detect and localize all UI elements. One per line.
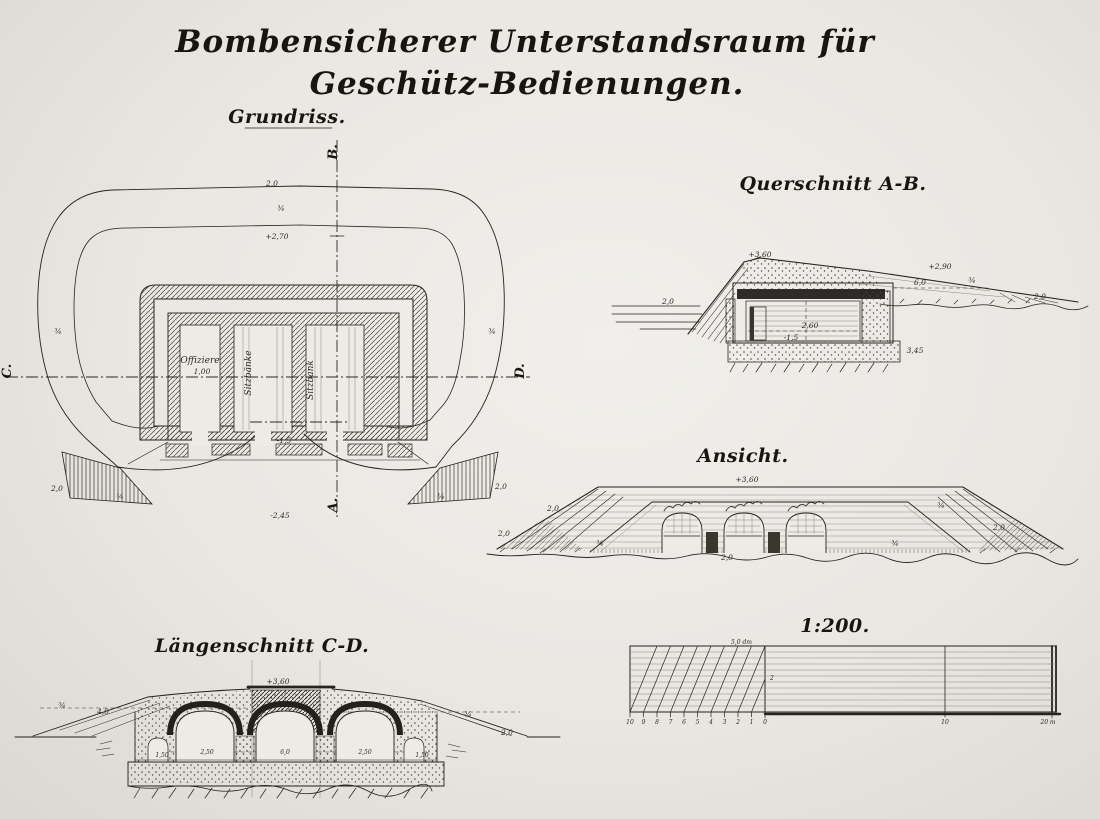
plan-dim-sole: -1,5	[277, 436, 292, 445]
scale-tick-2: 2	[735, 719, 740, 726]
cross-dim-floor: -1,5	[784, 333, 799, 342]
scale-tick-10l: 10	[626, 719, 634, 726]
plan-label: Grundriss.	[228, 106, 345, 128]
elev-dim-crest: +3,60	[736, 475, 759, 484]
plan-view: Grundriss.	[0, 106, 530, 520]
sheet-title-line1: Bombensicherer Unterstandsraum für	[174, 24, 876, 60]
elev-dim-slope-right-bottom: 2,0	[992, 523, 1005, 532]
scale-tick-4: 4	[708, 719, 713, 726]
long-floor-dim-1: 1,50	[155, 752, 169, 759]
cross-dim-foundation: 3,45	[907, 346, 924, 355]
plan-dim-slope-top: ¾	[277, 204, 284, 213]
plan-dim-wing-left-h: 2,0	[50, 484, 63, 493]
plan-dim-slope-left: ¾	[54, 327, 61, 336]
elev-dim-slope-left-top: 2,0	[546, 504, 559, 513]
plan-door-1	[192, 428, 208, 446]
long-section-label: Längenschnitt C-D.	[154, 635, 369, 657]
elevation-passage-1	[706, 532, 718, 553]
long-foundation	[128, 762, 444, 786]
plan-dim-slope-right: ¾	[488, 327, 495, 336]
plan-dim-top-width: 2,0	[265, 179, 278, 188]
scale-label: 1:200.	[800, 615, 870, 637]
long-section-view: Längenschnitt C-D. +3,6	[15, 635, 560, 798]
plan-axis-letter-B: B.	[326, 144, 341, 161]
elev-dim-slope-right-low: ¾	[891, 539, 898, 548]
elev-dim-slope-right: ¾	[937, 501, 944, 510]
plan-axis-letter-C: C.	[0, 364, 15, 379]
cross-dim-ground-right: 2,0	[1033, 292, 1046, 301]
plan-room-crew-1	[234, 325, 292, 432]
long-floor-dim-4: 2,50	[357, 749, 372, 756]
elev-dim-ground-left: 2,0	[497, 529, 510, 538]
cross-foundation	[728, 341, 900, 362]
plan-dim-wing-right-slope: ¼	[437, 492, 444, 501]
long-dim-ground-right: 2,0	[500, 728, 513, 737]
plan-door-2	[255, 428, 271, 446]
scale-tick-8: 8	[655, 719, 659, 726]
scale-tick-end: 20 m	[1039, 719, 1056, 726]
plan-room-officers	[180, 325, 220, 432]
drawing-sheet: Bombensicherer Unterstandsraum für Gesch…	[0, 0, 1100, 819]
elevation-passage-2	[768, 532, 780, 553]
scale-bar-drawing	[630, 646, 1060, 718]
long-dim-berm-left: 4,0	[96, 707, 109, 716]
plan-axis-letter-D: D.	[513, 363, 528, 379]
long-floor-dim-2: 2,50	[199, 749, 214, 756]
cross-section-drawing	[612, 257, 1088, 372]
plan-dim-room-width: 1,00	[194, 367, 211, 376]
sheet-title-line2: Geschütz-Bedienungen.	[310, 66, 745, 102]
plan-room-label-sitzbank: Sitzbank	[306, 360, 316, 400]
scale-bar: 1:200. 5,0 dm 2 10 9 8 7 6 5 4 3 2 1 0 1…	[626, 615, 1060, 726]
scale-tick-7: 7	[669, 719, 673, 726]
scale-tick-3: 3	[723, 719, 727, 726]
elevation-drawing	[487, 487, 1078, 565]
plan-dim-floor: -2,45	[270, 511, 289, 520]
scale-tick-9: 9	[642, 719, 646, 726]
cross-section-label: Querschnitt A-B.	[739, 173, 926, 195]
cross-section-view: Querschnitt A-B. +3,60 +2,90 6,0	[612, 173, 1088, 372]
plan-room-label-offiziere: Offiziere	[180, 356, 219, 366]
technical-drawing: Bombensicherer Unterstandsraum für Gesch…	[0, 0, 1100, 819]
cross-dim-shoulder: +2,90	[929, 262, 952, 271]
scale-tick-5: 5	[696, 719, 700, 726]
cross-dim-width: 6,0	[914, 278, 926, 287]
cross-dim-ground-left: 2,0	[661, 297, 674, 306]
long-floor-dim-3: 6,0	[280, 749, 290, 756]
elev-dim-slope-left: ¾	[596, 539, 603, 548]
scale-tick-0: 0	[763, 719, 767, 726]
plan-structure	[140, 285, 427, 460]
long-dim-crest: +3,60	[267, 677, 290, 686]
plan-dim-crest: +2,70	[266, 232, 289, 241]
scale-row-label: 2	[769, 675, 774, 682]
scale-tick-6: 6	[682, 719, 686, 726]
elevation-view: Ansicht. +3,60 2,	[487, 445, 1078, 565]
plan-axis-letter-A: A.	[326, 498, 341, 515]
elevation-label: Ansicht.	[695, 445, 788, 467]
plan-dim-wing-right-h: 2,0	[494, 482, 507, 491]
elev-dim-base: 2,0	[720, 553, 733, 562]
scale-tick-mid: 10	[941, 719, 949, 726]
plan-dim-wing-left-slope: ¼	[116, 492, 123, 501]
cross-dim-room-height: 2,60	[801, 321, 819, 330]
long-dim-slope-right: ¾	[464, 710, 471, 719]
plan-door-3	[327, 428, 343, 446]
cross-dim-slope: ¾	[968, 276, 975, 285]
long-floor-dim-5: 1,50	[415, 752, 429, 759]
elevation-arches	[662, 502, 826, 554]
long-dim-slope-left: ¾	[58, 701, 65, 710]
cross-dim-crest: +3,60	[749, 250, 772, 259]
scale-unit-label: 5,0 dm	[731, 639, 752, 646]
scale-tick-1: 1	[750, 719, 754, 726]
cross-right-pier	[862, 291, 890, 343]
plan-room-label-sitzbaenke: Sitzbänke	[244, 350, 254, 395]
